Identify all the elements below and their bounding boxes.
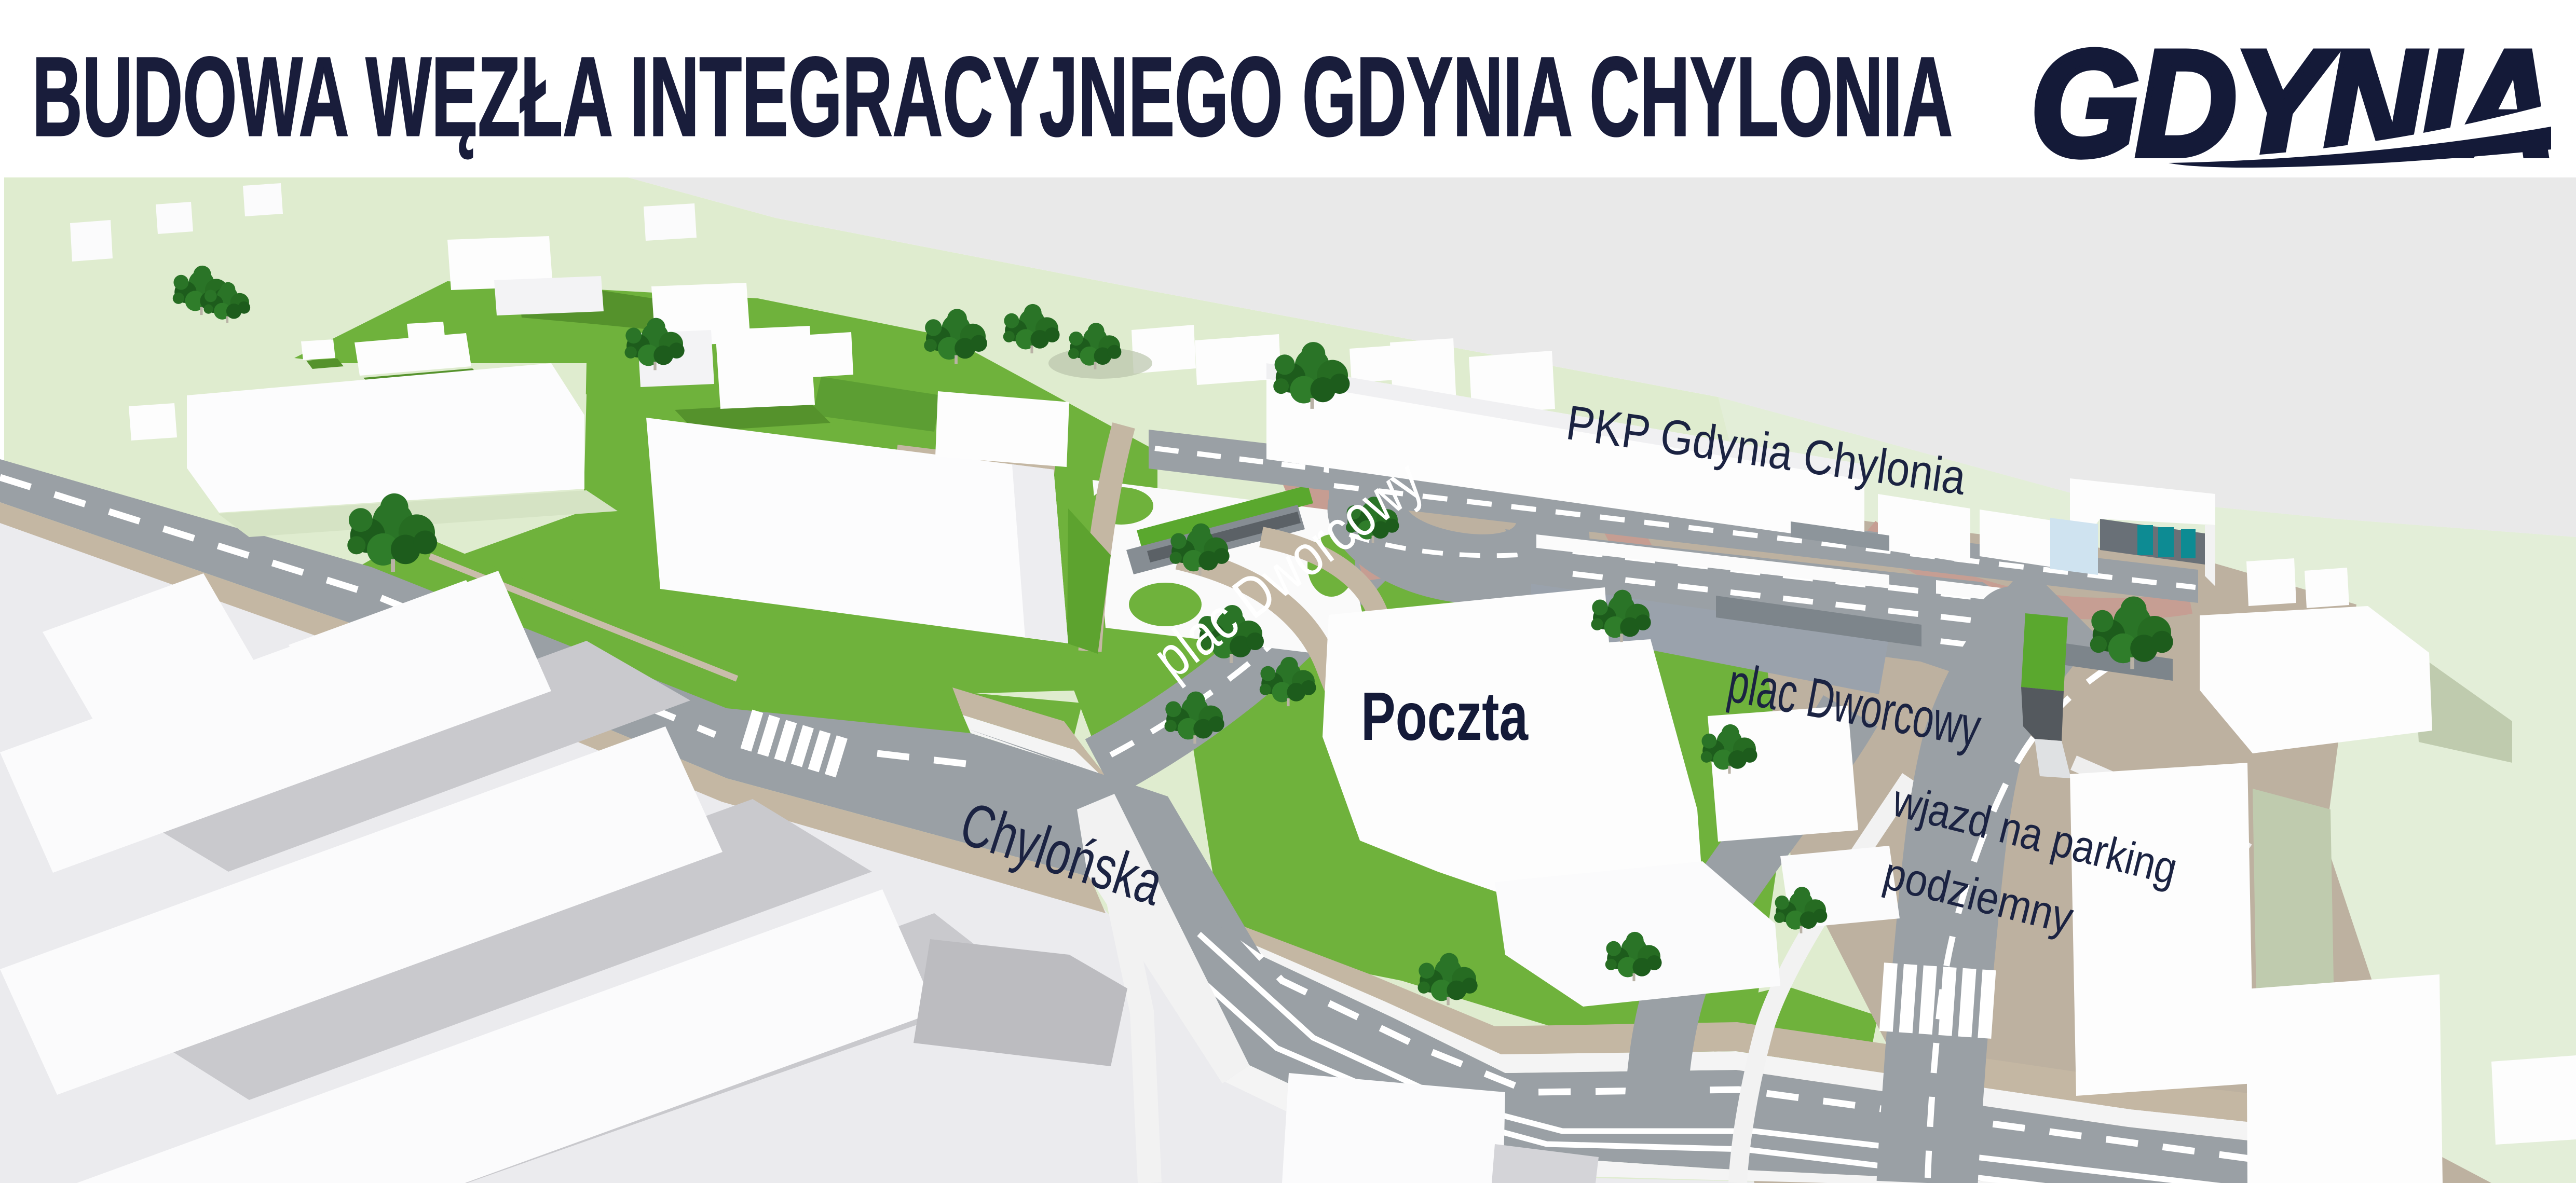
svg-text:Poczta: Poczta: [1361, 678, 1529, 754]
svg-text:BUDOWA WĘZŁA INTEGRACYJNEGO GD: BUDOWA WĘZŁA INTEGRACYJNEGO GDYNIA CHYLO…: [32, 34, 1953, 159]
